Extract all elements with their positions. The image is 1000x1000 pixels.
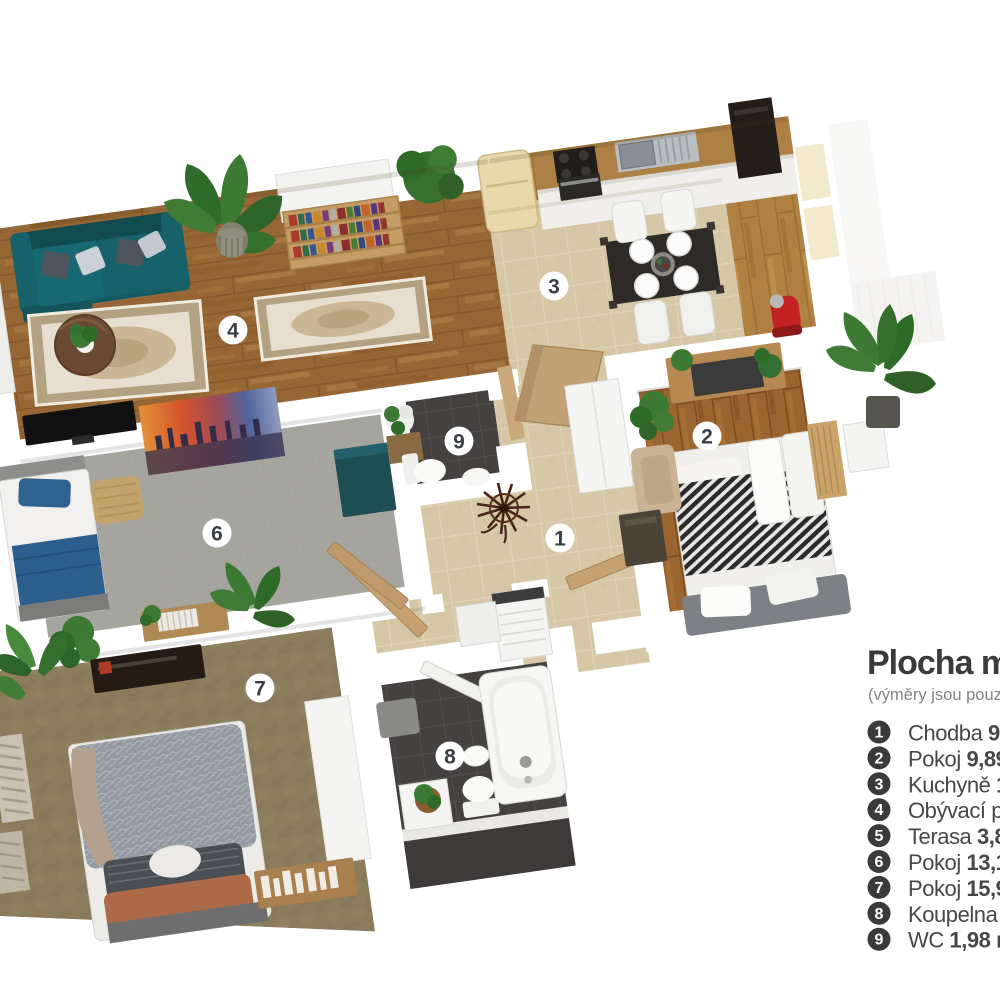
svg-text:Chodba 9,76 m²: Chodba 9,76 m²	[908, 721, 1000, 746]
svg-text:8: 8	[444, 746, 456, 769]
svg-text:2: 2	[875, 750, 884, 767]
svg-text:Pokoj 15,9 m²: Pokoj 15,9 m²	[908, 876, 1000, 901]
svg-text:1: 1	[875, 725, 884, 742]
svg-text:3: 3	[548, 276, 560, 299]
svg-text:7: 7	[254, 678, 266, 701]
svg-text:Plocha místností: Plocha místností	[867, 644, 1000, 682]
svg-text:(výměry jsou pouze orientační): (výměry jsou pouze orientační)	[868, 686, 1000, 704]
svg-text:Terasa 3,80 m²: Terasa 3,80 m²	[908, 824, 1000, 849]
svg-text:4: 4	[875, 802, 884, 819]
svg-text:6: 6	[211, 523, 223, 546]
svg-text:Kuchyně 14,28 m²: Kuchyně 14,28 m²	[908, 772, 1000, 797]
svg-text:4: 4	[227, 320, 239, 343]
svg-text:2: 2	[701, 426, 713, 449]
svg-text:7: 7	[875, 880, 884, 897]
svg-text:9: 9	[875, 932, 884, 949]
svg-text:Obývací pokoj 21,5 m²: Obývací pokoj 21,5 m²	[908, 798, 1000, 823]
svg-text:8: 8	[875, 906, 884, 923]
svg-text:6: 6	[875, 854, 884, 871]
svg-text:5: 5	[875, 828, 884, 845]
svg-text:1: 1	[554, 528, 566, 551]
svg-text:Pokoj 13,1 m²: Pokoj 13,1 m²	[908, 850, 1000, 875]
svg-text:3: 3	[875, 776, 884, 793]
svg-text:Koupelna 5,2 m²: Koupelna 5,2 m²	[908, 902, 1000, 927]
svg-text:9: 9	[453, 431, 465, 454]
svg-text:WC 1,98 m²: WC 1,98 m²	[908, 928, 1000, 953]
svg-text:Pokoj 9,89 m²: Pokoj 9,89 m²	[908, 746, 1000, 771]
